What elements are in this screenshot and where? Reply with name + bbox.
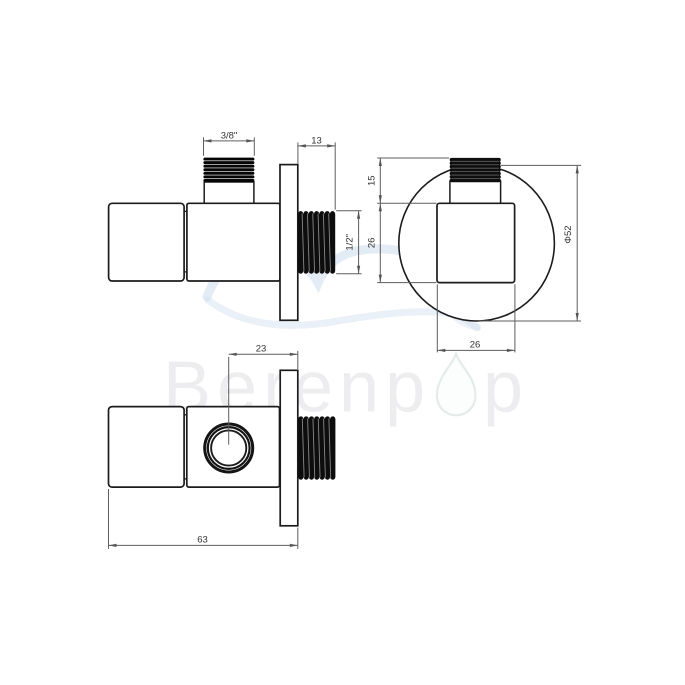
svg-text:Φ52: Φ52: [563, 225, 574, 243]
svg-text:3/8": 3/8": [221, 130, 238, 141]
svg-text:1/2": 1/2": [344, 234, 355, 251]
svg-text:15: 15: [367, 175, 378, 186]
svg-text:p: p: [483, 348, 523, 428]
svg-text:23: 23: [256, 344, 267, 355]
svg-text:26: 26: [470, 339, 481, 350]
svg-text:13: 13: [311, 135, 322, 146]
svg-text:26: 26: [367, 238, 378, 249]
svg-text:63: 63: [197, 534, 208, 545]
